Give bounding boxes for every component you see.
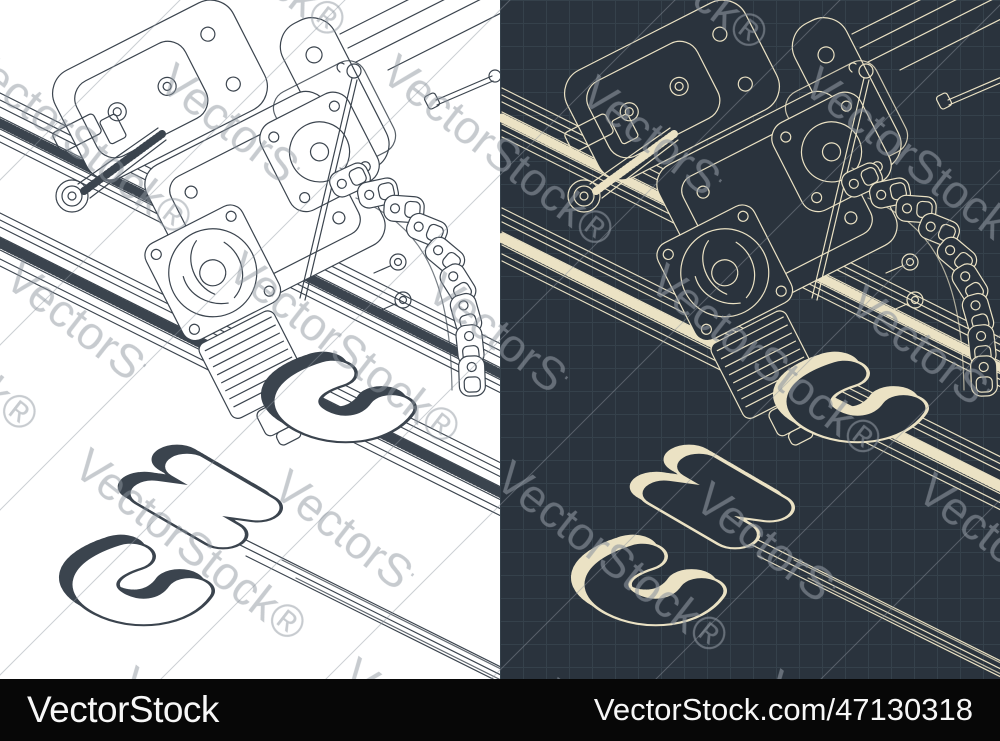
watermark-overlay-right <box>500 0 1000 679</box>
stock-image-page: VectorStock® VectorStock® VectorStock Ve… <box>0 0 1000 741</box>
footer-bar: VectorStock VectorStock.com/47130318 <box>0 679 1000 741</box>
cnc-machine-scene: VectorStock® VectorStock® <box>0 0 1000 679</box>
watermark-overlay-left <box>0 0 500 679</box>
credit-url: VectorStock.com/47130318 <box>594 692 973 728</box>
brand-wordmark: VectorStock <box>27 689 219 731</box>
